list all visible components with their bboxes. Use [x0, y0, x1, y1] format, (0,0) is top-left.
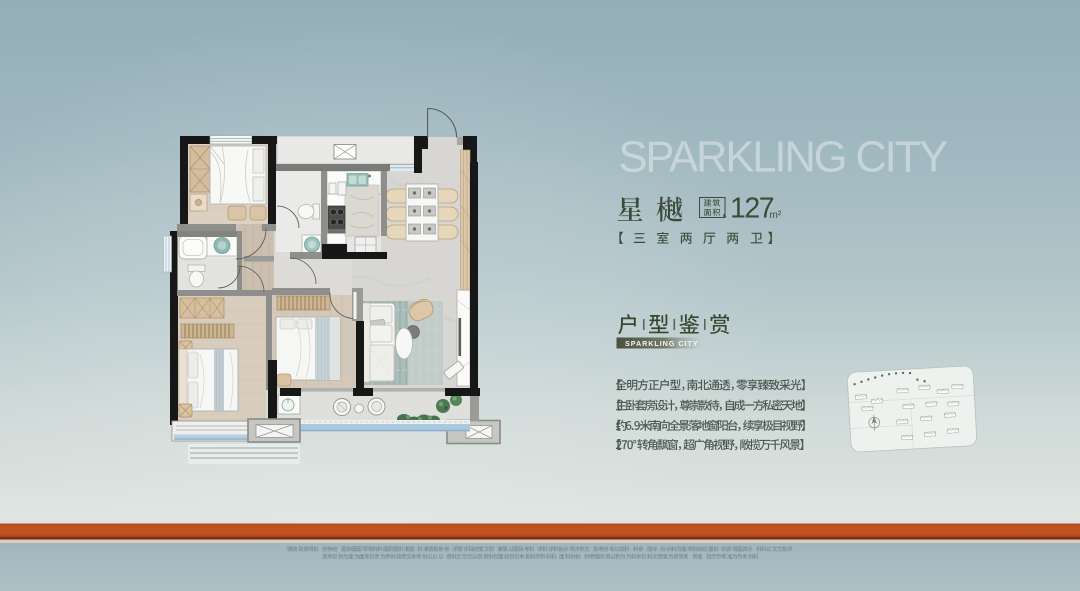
svg-text:127: 127	[730, 193, 774, 225]
svg-text:m²: m²	[770, 210, 782, 221]
svg-text:SPARKLING CITY: SPARKLING CITY	[619, 134, 949, 182]
svg-text:SPARKLING CITY: SPARKLING CITY	[625, 339, 698, 348]
